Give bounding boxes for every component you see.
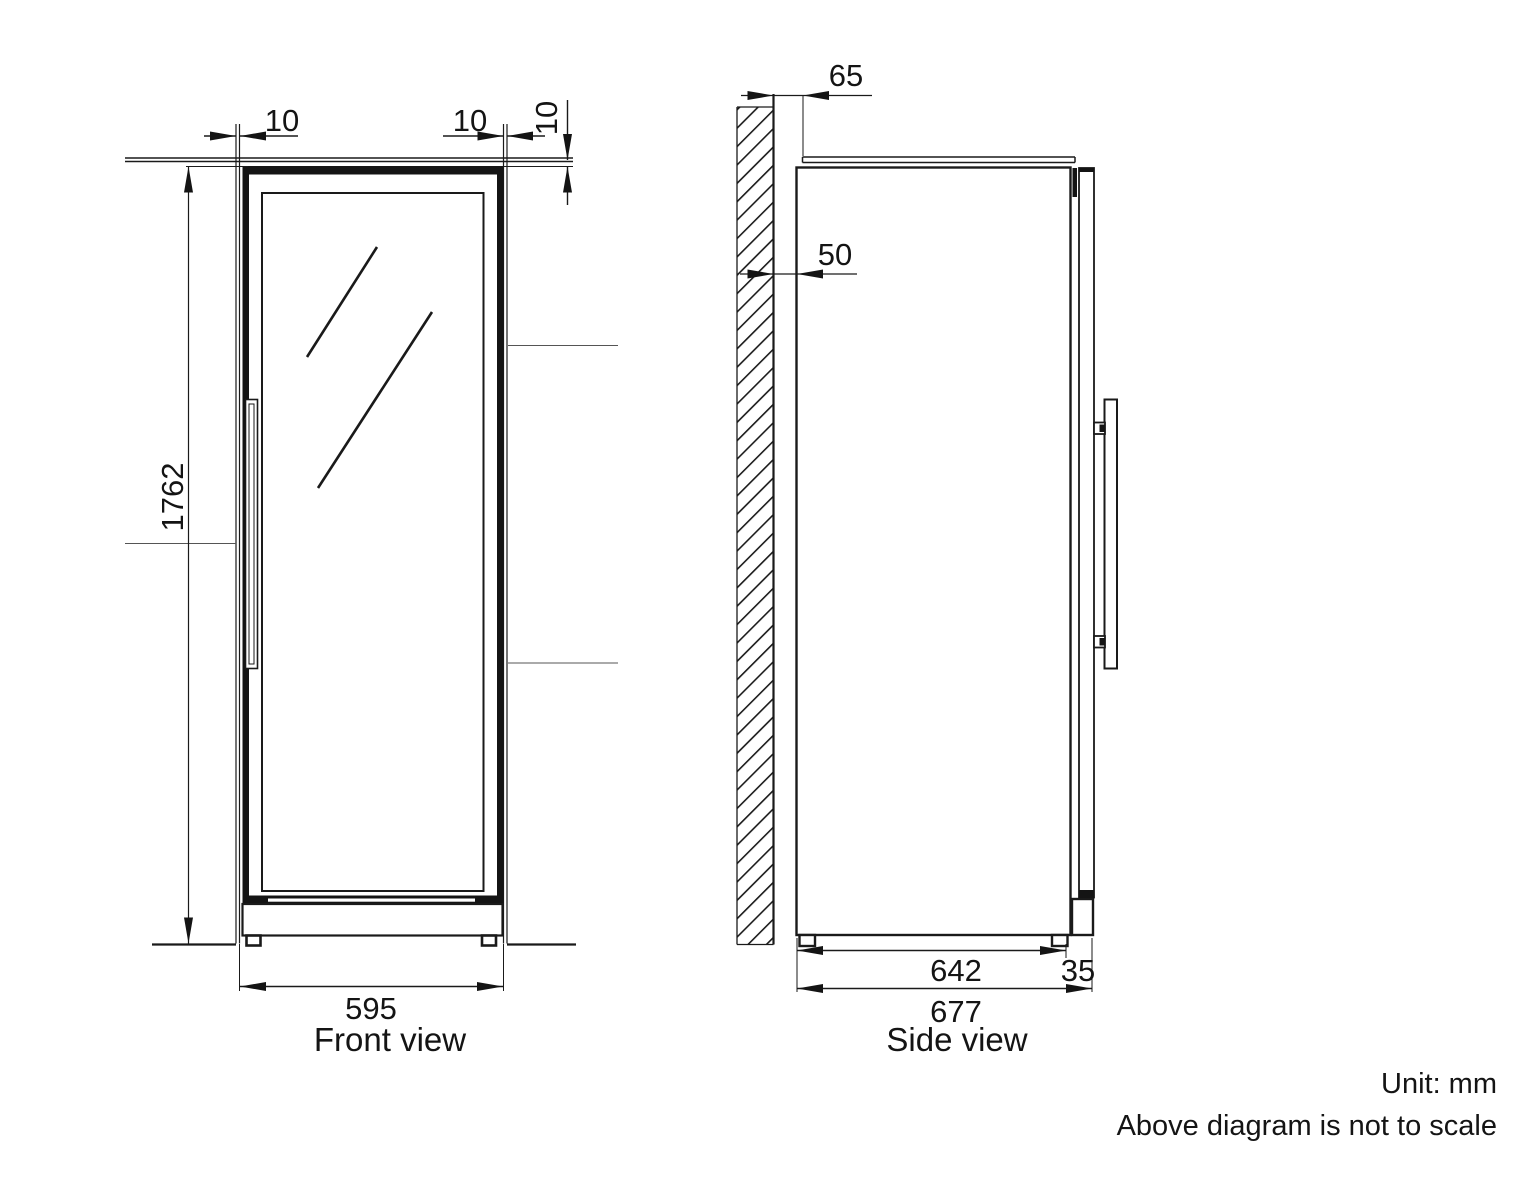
side-rear-foot [800, 935, 816, 946]
wall-hatch [737, 107, 774, 945]
side-view: 65 50 642 35 677 Side view [737, 58, 1117, 1058]
door-side-profile [1079, 168, 1094, 898]
side-handle-bar [1105, 400, 1118, 669]
cabinet-body [797, 168, 1071, 936]
kick-plate-slot [268, 899, 475, 902]
front-left-foot [247, 936, 261, 946]
top-clearance-arrowheads [563, 134, 572, 193]
width-extension-lines [240, 944, 504, 991]
door-handle [246, 400, 258, 669]
handle-mount-upper-pad [1100, 425, 1106, 433]
top-left-gap-arrowheads [210, 132, 266, 141]
dim-label-height: 1762 [155, 463, 190, 532]
top-panel [803, 157, 1076, 163]
front-right-foot [482, 936, 496, 946]
glass-panel [262, 193, 484, 891]
notes: Unit: mm Above diagram is not to scale [1117, 1068, 1497, 1142]
side-front-foot [1052, 935, 1068, 946]
side-view-caption: Side view [886, 1021, 1027, 1058]
adjacent-cabinetry-lines [508, 346, 618, 664]
door-bottom-bracket [1072, 899, 1093, 935]
handle-mount-lower-pad [1100, 638, 1106, 646]
scale-note: Above diagram is not to scale [1117, 1110, 1497, 1142]
dim-label-door-thickness: 35 [1061, 953, 1095, 988]
door-top-cap [1079, 168, 1094, 172]
right-recess-gap-lines [504, 124, 508, 944]
door-bottom-cap [1079, 890, 1094, 899]
dim-label-top-rear-clearance: 65 [829, 58, 863, 93]
plinth [243, 904, 503, 936]
installation-dimension-diagram: 1762 10 10 10 595 Front view [0, 0, 1539, 1200]
dim-label-top-right-gap: 10 [453, 103, 487, 138]
unit-note: Unit: mm [1381, 1068, 1497, 1100]
dim-label-body-depth: 642 [930, 953, 982, 988]
front-view: 1762 10 10 10 595 Front view [125, 100, 618, 1058]
dim-label-top-clearance: 10 [529, 101, 564, 135]
dim-label-wall-clearance: 50 [818, 237, 852, 272]
hinge-pin [1073, 168, 1078, 197]
ceiling-line [125, 158, 573, 162]
dim-label-top-left-gap: 10 [265, 103, 299, 138]
left-recess-gap-lines [236, 124, 240, 944]
front-view-caption: Front view [314, 1021, 466, 1058]
diagram-svg: 1762 10 10 10 595 Front view [0, 0, 1539, 1200]
